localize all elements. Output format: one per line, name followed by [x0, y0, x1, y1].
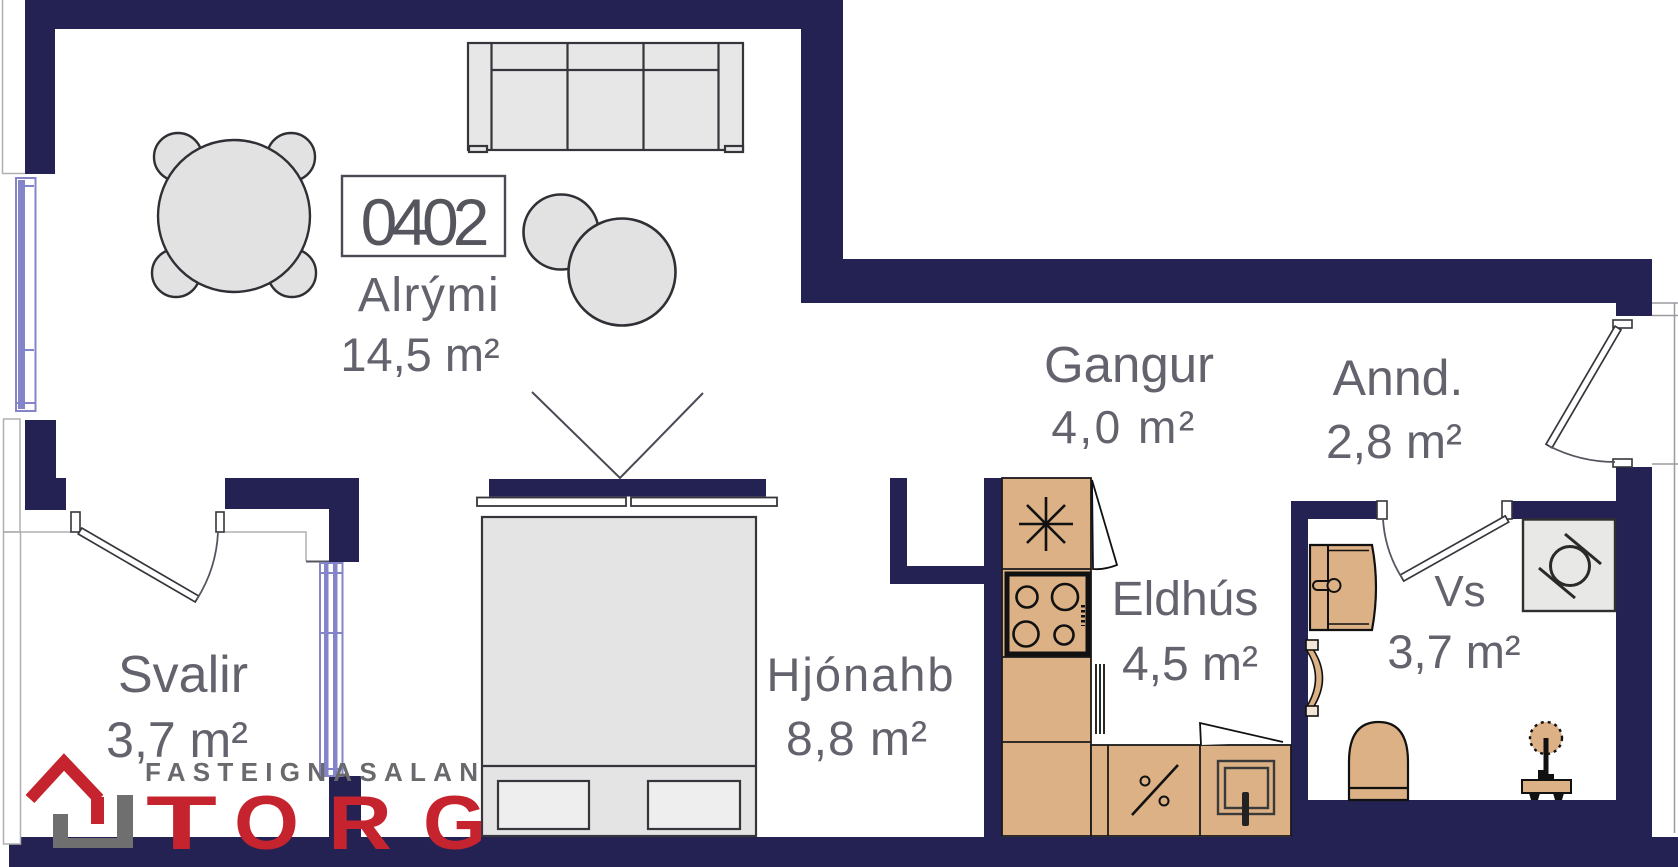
svg-text:Annd.: Annd.: [1333, 350, 1464, 406]
svg-text:Alrými: Alrými: [358, 269, 500, 322]
svg-text:2,8 m²: 2,8 m²: [1326, 416, 1462, 469]
svg-text:Gangur: Gangur: [1044, 336, 1214, 393]
svg-text:4,5 m²: 4,5 m²: [1122, 638, 1258, 691]
svg-text:0402: 0402: [361, 185, 487, 259]
svg-text:O: O: [234, 781, 299, 866]
svg-text:G: G: [423, 781, 486, 866]
svg-text:4,0 m²: 4,0 m²: [1051, 401, 1196, 453]
svg-text:Svalir: Svalir: [118, 646, 248, 704]
svg-text:Hjónahb: Hjónahb: [766, 648, 955, 701]
svg-text:8,8 m²: 8,8 m²: [786, 713, 928, 766]
svg-text:Eldhús: Eldhús: [1112, 573, 1259, 626]
svg-text:T: T: [146, 781, 217, 866]
svg-text:Vs: Vs: [1434, 567, 1485, 616]
svg-text:14,5 m²: 14,5 m²: [340, 328, 499, 381]
svg-text:R: R: [328, 781, 392, 866]
svg-text:3,7 m²: 3,7 m²: [1387, 625, 1520, 678]
